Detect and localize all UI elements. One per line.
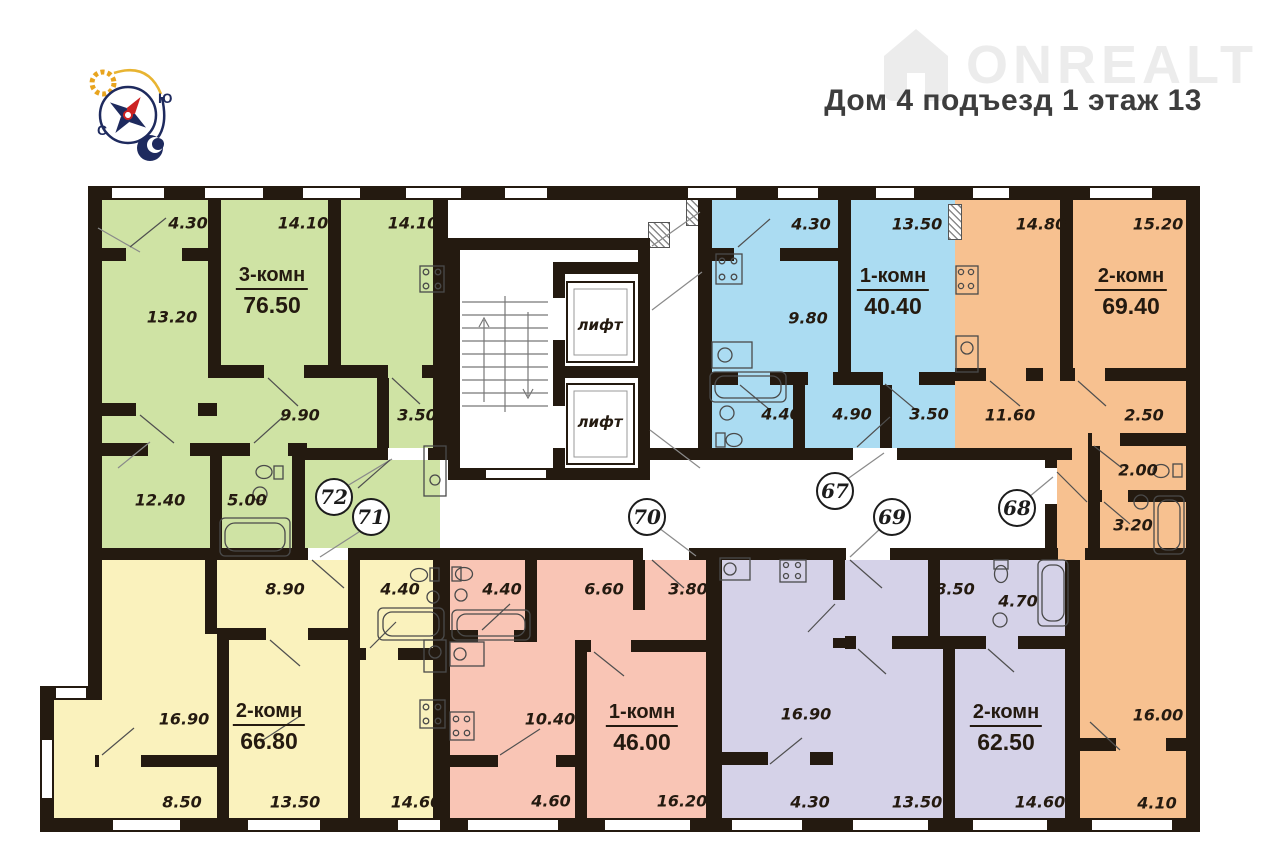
compass-north-label: С <box>97 122 107 138</box>
wall <box>210 455 222 560</box>
wall <box>553 262 650 274</box>
room-area-label: 8.90 <box>265 580 304 599</box>
wall <box>638 238 650 480</box>
wall <box>943 649 955 818</box>
door-opening <box>1102 490 1128 502</box>
apartment-number-label: 72 <box>320 485 348 509</box>
room-area-label: 16.20 <box>657 792 708 811</box>
apartment-type: 3-комн <box>236 264 308 290</box>
room-area-label: 13.50 <box>270 793 321 812</box>
compass-south-label: Ю <box>158 90 172 106</box>
elevator-label: лифт <box>577 413 622 431</box>
window <box>1090 186 1152 200</box>
apartment-area: 62.50 <box>970 729 1042 756</box>
room-area-label: 13.50 <box>892 215 943 234</box>
vent-shaft <box>648 222 670 248</box>
door-opening <box>388 365 422 378</box>
window <box>605 818 690 832</box>
wall <box>838 195 851 377</box>
apartment-number-67[interactable]: 67 <box>816 472 854 510</box>
room-area-label: 14.10 <box>278 214 329 233</box>
room-area-label: 9.80 <box>788 309 827 328</box>
apartment-region-71[interactable] <box>95 560 440 820</box>
room-area-label: 8.50 <box>162 793 201 812</box>
apartment-title-72: 3-комн 76.50 <box>236 264 308 319</box>
apartment-type: 2-комн <box>1095 265 1167 291</box>
wall <box>88 548 306 560</box>
window <box>486 468 546 480</box>
room-area-label: 4.40 <box>761 405 800 424</box>
wall <box>706 558 722 820</box>
room-area-label: 4.40 <box>380 580 419 599</box>
window <box>778 186 818 200</box>
room-area-label: 9.90 <box>280 406 319 425</box>
apartment-type: 1-комн <box>606 701 678 727</box>
room-area-label: 16.90 <box>159 710 210 729</box>
window <box>56 686 86 700</box>
elevator-label: лифт <box>577 316 622 334</box>
sun-icon <box>92 72 114 94</box>
window <box>205 186 263 200</box>
door-opening <box>136 403 198 416</box>
room-area-label: 6.60 <box>584 580 623 599</box>
wall <box>955 448 1072 460</box>
apartment-title-70: 1-комн 46.00 <box>606 701 678 756</box>
apartment-number-71[interactable]: 71 <box>352 498 390 536</box>
window <box>468 818 558 832</box>
room-area-label: 4.30 <box>791 215 830 234</box>
compass-logo-icon: Ю С <box>70 48 200 173</box>
wall <box>1186 195 1200 832</box>
wall <box>208 195 221 377</box>
apartment-area: 66.80 <box>233 728 305 755</box>
wall <box>553 366 650 378</box>
apartment-number-72[interactable]: 72 <box>315 478 353 516</box>
wall <box>448 238 460 480</box>
apartment-title-68: 2-комн 69.40 <box>1095 265 1167 320</box>
room-area-label: 4.40 <box>482 580 521 599</box>
wall <box>377 377 389 450</box>
room-area-label: 8.50 <box>935 580 974 599</box>
elevator-door-opening <box>553 406 565 448</box>
door-opening <box>148 443 190 456</box>
apartment-area: 76.50 <box>236 292 308 319</box>
door-opening <box>126 248 182 261</box>
wall <box>1085 548 1195 560</box>
wall <box>1088 445 1100 560</box>
room-area-label: 2.50 <box>1124 406 1163 425</box>
entry-door-opening <box>1045 468 1057 504</box>
door-opening <box>986 368 1026 381</box>
wall <box>575 640 587 818</box>
room-area-label: 4.30 <box>168 214 207 233</box>
apartment-number-70[interactable]: 70 <box>628 498 666 536</box>
door-opening <box>833 600 845 638</box>
room-area-label: 14.80 <box>1016 215 1067 234</box>
apartment-title-71: 2-комн 66.80 <box>233 700 305 755</box>
room-area-label: 4.60 <box>531 792 570 811</box>
wall <box>710 448 955 460</box>
door-opening <box>591 640 631 652</box>
wall <box>698 195 712 460</box>
entry-door-opening <box>853 448 897 460</box>
room-area-label: 3.80 <box>668 580 707 599</box>
wall <box>448 238 650 250</box>
door-opening <box>1116 738 1166 751</box>
window <box>112 186 164 200</box>
wall <box>525 558 537 640</box>
window <box>248 818 320 832</box>
window <box>973 186 1009 200</box>
door-opening <box>768 752 810 765</box>
window <box>688 186 736 200</box>
door-opening <box>366 648 398 660</box>
apartment-area: 40.40 <box>857 293 929 320</box>
room-area-label: 3.50 <box>397 406 436 425</box>
window <box>303 186 360 200</box>
room-area-label: 14.60 <box>1015 793 1066 812</box>
entry-door-opening <box>846 548 890 560</box>
window <box>398 818 440 832</box>
wall <box>448 468 650 480</box>
floorplan-page: ONREALT Дом 4 подъезд 1 этаж 13 Ю С <box>0 0 1280 855</box>
apartment-number-label: 67 <box>821 479 849 503</box>
door-opening <box>1092 433 1120 446</box>
window <box>505 186 547 200</box>
room-area-label: 14.60 <box>391 793 442 812</box>
room-area-label: 2.00 <box>1118 461 1157 480</box>
door-opening <box>856 636 892 649</box>
apartment-type: 2-комн <box>233 700 305 726</box>
room-area-label: 16.00 <box>1133 706 1184 725</box>
elevator-door-opening <box>553 298 565 340</box>
apartment-title-69: 2-комн 62.50 <box>970 701 1042 756</box>
apartment-number-label: 71 <box>357 505 385 529</box>
apartment-number-68[interactable]: 68 <box>998 489 1036 527</box>
apartment-number-69[interactable]: 69 <box>873 498 911 536</box>
wall <box>292 443 305 560</box>
vent-shaft <box>948 204 962 240</box>
window <box>876 186 914 200</box>
window <box>1092 818 1172 832</box>
apartment-number-label: 70 <box>633 505 661 529</box>
wall <box>348 660 360 818</box>
room-area-label: 16.90 <box>781 705 832 724</box>
room-area-label: 4.90 <box>832 405 871 424</box>
room-area-label: 3.20 <box>1113 516 1152 535</box>
wall <box>433 558 450 820</box>
door-opening <box>478 630 514 642</box>
room-area-label: 12.40 <box>135 491 186 510</box>
door-opening <box>734 248 780 261</box>
window <box>40 740 54 798</box>
room-area-label: 4.10 <box>1137 794 1176 813</box>
door-opening <box>883 372 919 385</box>
room-area-label: 3.50 <box>909 405 948 424</box>
entry-door-opening <box>643 548 689 560</box>
window <box>406 186 461 200</box>
apartment-area: 46.00 <box>606 729 678 756</box>
apartment-number-label: 69 <box>878 505 906 529</box>
door-opening <box>99 755 141 767</box>
room-area-label: 15.20 <box>1133 215 1184 234</box>
wall <box>328 195 341 377</box>
room-area-label: 5.00 <box>227 491 266 510</box>
room-area-label: 13.20 <box>147 308 198 327</box>
window <box>973 818 1047 832</box>
door-opening <box>1075 368 1105 381</box>
wall <box>1065 560 1080 822</box>
room-area-label: 4.70 <box>998 592 1037 611</box>
door-opening <box>986 636 1018 649</box>
room-area-label: 4.30 <box>790 793 829 812</box>
apartment-region-68-bottom[interactable] <box>1068 560 1188 820</box>
door-opening <box>738 372 770 385</box>
apartment-type: 2-комн <box>970 701 1042 727</box>
apartment-type: 1-комн <box>857 265 929 291</box>
page-title: Дом 4 подъезд 1 этаж 13 <box>824 84 1202 118</box>
wall <box>633 558 645 610</box>
door-opening <box>498 755 556 767</box>
room-area-label: 14.10 <box>388 214 439 233</box>
window <box>113 818 180 832</box>
entry-door-opening <box>388 448 428 460</box>
room-area-label: 11.60 <box>985 406 1036 425</box>
window <box>853 818 928 832</box>
apartment-title-67: 1-комн 40.40 <box>857 265 929 320</box>
window <box>732 818 802 832</box>
wall <box>650 448 710 460</box>
room-area-label: 10.40 <box>525 710 576 729</box>
wall <box>205 558 217 634</box>
door-opening <box>266 628 308 640</box>
apartment-number-label: 68 <box>1003 496 1031 520</box>
wall <box>217 640 229 818</box>
entry-door-opening <box>308 548 348 560</box>
apartment-area: 69.40 <box>1095 293 1167 320</box>
wall <box>348 558 360 660</box>
room-area-label: 13.50 <box>892 793 943 812</box>
door-opening <box>250 443 288 456</box>
door-opening <box>264 365 304 378</box>
